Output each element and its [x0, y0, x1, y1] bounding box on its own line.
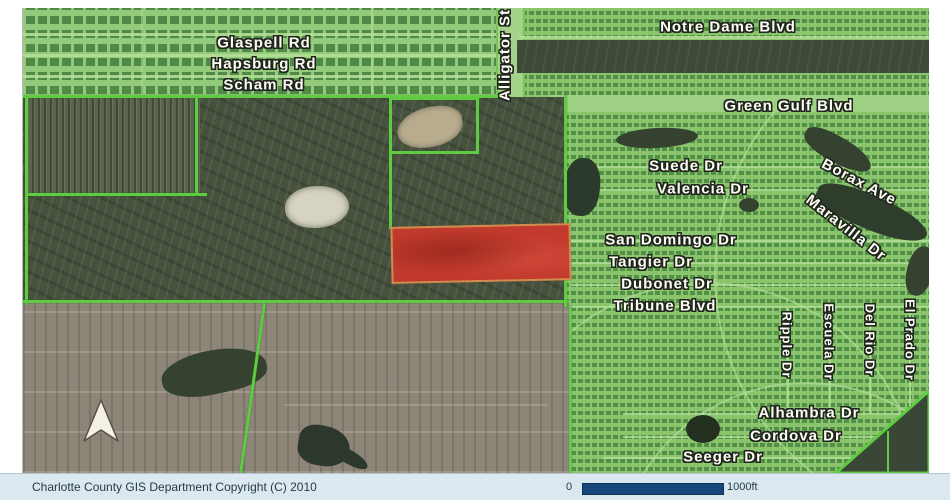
scale-start-label: 0 — [566, 481, 572, 493]
parcel-line — [23, 300, 569, 303]
vegetation-strip — [517, 40, 929, 73]
parcel-line — [195, 97, 198, 196]
scale-end-label: 1000ft — [727, 481, 758, 493]
street-label-escuela-dr: Escuela Dr — [822, 303, 837, 380]
street-label-seeger-dr: Seeger Dr — [683, 449, 763, 466]
parcel-line — [569, 305, 572, 473]
street-label-cordova-dr: Cordova Dr — [750, 428, 842, 445]
street-label-green-gulf-blvd: Green Gulf Blvd — [724, 98, 853, 115]
striated-woods-parcel — [26, 97, 200, 195]
small-pond — [739, 198, 759, 212]
street-line — [571, 166, 929, 168]
street-label-suede-dr: Suede Dr — [649, 158, 723, 175]
north-arrow-icon — [81, 398, 121, 444]
status-bar: Charlotte County GIS Department Copyrigh… — [0, 473, 950, 500]
street-label-tribune-blvd: Tribune Blvd — [614, 298, 717, 315]
parcel-line — [25, 193, 207, 196]
street-label-del-rio-dr: Del Rio Dr — [863, 304, 878, 377]
copyright-text: Charlotte County GIS Department Copyrigh… — [32, 480, 317, 494]
map-canvas[interactable]: Glaspell Rd Hapsburg Rd Scham Rd Alligat… — [22, 8, 929, 473]
street-label-glaspell-rd: Glaspell Rd — [217, 35, 311, 52]
street-label-tangier-dr: Tangier Dr — [609, 254, 693, 271]
scale-bar — [582, 483, 724, 495]
parcel-line — [389, 148, 392, 229]
parcel-line — [25, 97, 28, 305]
band-break-line — [141, 8, 143, 97]
street-label-hapsburg-rd: Hapsburg Rd — [211, 56, 316, 73]
farm-track-line — [285, 404, 547, 406]
notch-parcel-outline — [389, 97, 479, 154]
street-label-alligator-st: Alligator St — [497, 9, 514, 101]
street-label-san-domingo-dr: San Domingo Dr — [605, 232, 737, 249]
band-break-line — [371, 8, 373, 97]
street-label-valencia-dr: Valencia Dr — [657, 181, 749, 198]
street-label-notre-dame-blvd: Notre Dame Blvd — [660, 19, 796, 36]
street-label-alhambra-dr: Alhambra Dr — [758, 405, 859, 422]
street-label-dubonet-dr: Dubonet Dr — [621, 276, 713, 293]
notre-dame-road-line — [519, 36, 929, 39]
street-label-ripple-dr: Ripple Dr — [780, 312, 795, 379]
street-label-el-prado-dr: El Prado Dr — [903, 299, 918, 381]
highlighted-parcel[interactable] — [390, 223, 571, 284]
alhambra-pond — [686, 415, 720, 443]
street-label-scham-rd: Scham Rd — [223, 77, 304, 94]
farmland-area — [23, 302, 569, 473]
gis-map-window: Glaspell Rd Hapsburg Rd Scham Rd Alligat… — [0, 0, 950, 500]
